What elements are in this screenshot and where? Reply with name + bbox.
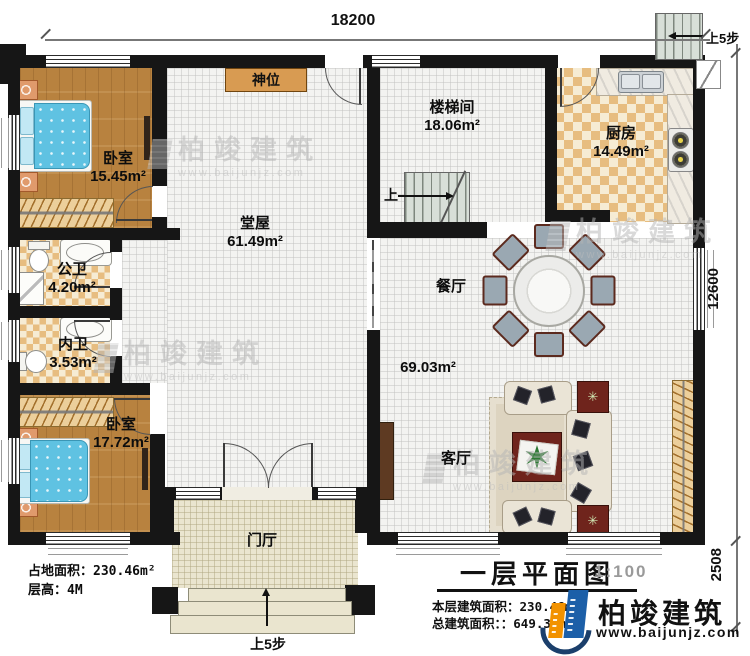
wall-corner-block bbox=[355, 487, 380, 533]
room-label-bedroom2: 卧室 17.72m² bbox=[93, 416, 149, 452]
wall-segment bbox=[545, 55, 557, 222]
entrance-step bbox=[170, 615, 355, 634]
wardrobe bbox=[16, 198, 114, 228]
window bbox=[46, 55, 130, 68]
kitchen-sink bbox=[618, 71, 664, 93]
window-sill bbox=[1, 250, 9, 290]
door-gap bbox=[558, 55, 600, 68]
wall-segment bbox=[367, 222, 487, 238]
sofa-pillow bbox=[513, 386, 532, 405]
dimension-label-right: 12600 bbox=[705, 268, 722, 310]
brand-logo-icon bbox=[544, 590, 598, 646]
window bbox=[372, 55, 420, 68]
exterior-vent bbox=[696, 60, 721, 89]
dimension-tick bbox=[40, 29, 50, 39]
watermark-name: 柏竣建筑 bbox=[453, 442, 597, 481]
window bbox=[8, 247, 20, 293]
tv-cabinet bbox=[378, 422, 394, 500]
bed-pillow bbox=[20, 137, 34, 165]
burner-icon bbox=[672, 151, 689, 168]
room-label-living: 客厅 bbox=[441, 450, 471, 468]
wall-corner-pilaster bbox=[0, 44, 11, 84]
wall-segment bbox=[8, 306, 122, 318]
stove-cooktop bbox=[668, 128, 694, 172]
watermark-logo-icon bbox=[147, 139, 172, 169]
door-leaf bbox=[74, 320, 110, 322]
sofa-two-seat bbox=[504, 381, 572, 415]
room-label-foyer: 门厅 bbox=[247, 532, 277, 550]
room-label-stairwell: 楼梯间 18.06m² bbox=[424, 99, 480, 135]
dimension-label-right-lower: 2508 bbox=[708, 548, 725, 581]
wall-segment bbox=[8, 383, 150, 395]
dining-chair bbox=[591, 276, 616, 306]
bed-quilt bbox=[30, 440, 88, 502]
watermark: 柏竣建筑 www.baijunjz.com bbox=[548, 210, 720, 261]
sink-basin bbox=[642, 74, 661, 89]
watermark-name: 柏竣建筑 bbox=[124, 332, 268, 371]
watermark-name: 柏竣建筑 bbox=[178, 128, 322, 167]
door-leaf bbox=[116, 219, 152, 221]
side-steps-arrow bbox=[676, 35, 704, 37]
window-sill bbox=[1, 440, 9, 482]
room-label-dining: 餐厅 bbox=[436, 278, 466, 296]
window bbox=[46, 532, 130, 545]
window bbox=[568, 532, 660, 545]
dimension-line bbox=[45, 39, 710, 41]
site-area-line: 占地面积：230.46m² bbox=[28, 560, 156, 579]
arrow-head-icon bbox=[262, 588, 270, 596]
room-label-kitchen: 厨房 14.49m² bbox=[593, 125, 649, 161]
wall-segment bbox=[110, 240, 122, 252]
side-table: ✳ bbox=[577, 381, 609, 413]
floor-height-line: 层高：4M bbox=[28, 579, 83, 598]
room-label-inner-bath: 内卫 3.53m² bbox=[49, 336, 97, 372]
watermark-url: www.baijunjz.com bbox=[576, 249, 720, 261]
room-label-bedroom1: 卧室 15.45m² bbox=[90, 150, 146, 186]
wall-cabinet bbox=[672, 380, 695, 535]
window-sill bbox=[1, 322, 9, 360]
sofa-two-seat bbox=[502, 500, 572, 534]
watermark-url: www.baijunjz.com bbox=[178, 167, 322, 179]
room-label-public-bath: 公卫 4.20m² bbox=[48, 261, 96, 297]
door-gap bbox=[325, 55, 363, 68]
door-leaf bbox=[560, 68, 562, 106]
tv-unit bbox=[142, 448, 148, 490]
bed-pillow bbox=[20, 107, 34, 135]
side-steps-label: 上5步 bbox=[706, 28, 739, 47]
sofa-pillow bbox=[571, 419, 591, 439]
window bbox=[318, 487, 356, 500]
shrine-label: 神位 bbox=[252, 70, 280, 90]
wall-segment bbox=[8, 228, 180, 240]
watermark: 柏竣建筑 www.baijunjz.com bbox=[150, 128, 322, 179]
shrine-shelf: 神位 bbox=[225, 68, 307, 92]
room-label-hall: 堂屋 61.49m² bbox=[227, 215, 283, 251]
wall-segment bbox=[367, 330, 380, 487]
window-sill bbox=[1, 118, 9, 168]
wall-segment bbox=[367, 55, 380, 238]
door-leaf bbox=[114, 398, 150, 400]
side-steps bbox=[655, 13, 703, 60]
shower-tray bbox=[19, 272, 44, 305]
sink-basin bbox=[621, 74, 640, 89]
entry-direction-arrow bbox=[266, 596, 268, 626]
toilet-bowl bbox=[25, 350, 47, 373]
sliding-door bbox=[372, 240, 374, 328]
door-leaf bbox=[223, 443, 225, 487]
brand-website: www.baijunjz.com bbox=[596, 624, 741, 640]
window-sill bbox=[48, 548, 128, 555]
sofa-pillow bbox=[513, 507, 533, 527]
watermark-logo-icon bbox=[545, 221, 570, 251]
side-table-star-icon: ✳ bbox=[588, 513, 599, 529]
stair-direction-arrow bbox=[398, 195, 448, 197]
dining-chair bbox=[483, 276, 508, 306]
watermark: 柏竣建筑 www.baijunjz.com bbox=[96, 332, 268, 383]
window bbox=[8, 320, 20, 362]
watermark-url: www.baijunjz.com bbox=[453, 481, 597, 493]
window bbox=[176, 487, 220, 500]
stair-up-label: 上 bbox=[384, 185, 398, 205]
burner-icon bbox=[672, 132, 689, 149]
door-threshold bbox=[222, 487, 312, 500]
bed-quilt bbox=[34, 103, 90, 169]
window bbox=[8, 115, 20, 170]
door-leaf bbox=[359, 68, 361, 104]
door-leaf bbox=[311, 443, 313, 487]
wall-porch-pier bbox=[160, 500, 174, 545]
porch-pillar bbox=[152, 587, 178, 614]
window bbox=[398, 532, 498, 545]
dimension-line bbox=[736, 44, 738, 634]
sofa-pillow bbox=[537, 507, 555, 525]
toilet-bowl bbox=[29, 249, 49, 272]
dining-chair bbox=[534, 332, 564, 357]
floor-plan-canvas: 神位 ✳ ✳ bbox=[0, 0, 750, 656]
watermark-url: www.baijunjz.com bbox=[124, 371, 268, 383]
entry-steps-label: 上5步 bbox=[250, 634, 286, 654]
side-table-star-icon: ✳ bbox=[588, 389, 599, 405]
area-label-open-space: 69.03m² bbox=[400, 359, 456, 377]
plan-title: 一层平面图 bbox=[460, 554, 615, 591]
watermark-name: 柏竣建筑 bbox=[576, 210, 720, 249]
arrow-head-icon bbox=[446, 192, 454, 200]
sofa-pillow bbox=[537, 385, 555, 403]
dining-table bbox=[513, 255, 585, 327]
plan-scale: 1:100 bbox=[594, 562, 647, 582]
dimension-label-top: 18200 bbox=[331, 12, 376, 30]
window bbox=[8, 438, 20, 484]
